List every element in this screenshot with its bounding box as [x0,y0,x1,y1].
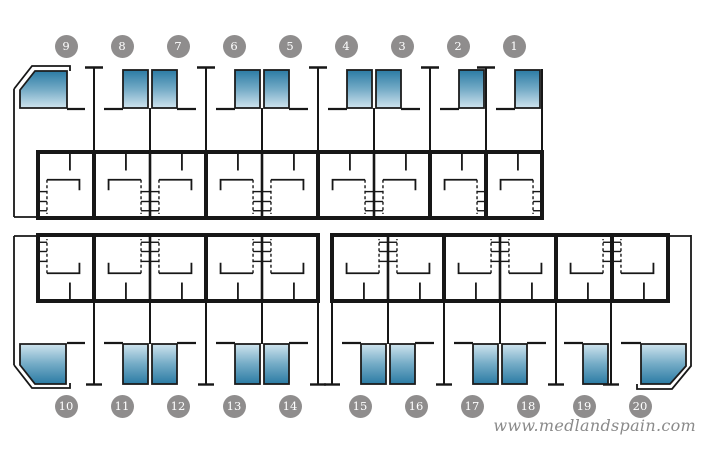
unit-badge-18: 18 [517,395,540,418]
pool-unit-20 [641,344,686,384]
unit-badge-19: 19 [573,395,596,418]
plan-room-wall [109,263,141,274]
unit-plan-6 [221,152,262,214]
unit-badge-7: 7 [167,35,190,58]
plan-room-wall [383,180,415,191]
unit-plan-9 [38,152,79,214]
unit-plan-16 [388,239,429,301]
pool-unit-7 [152,70,177,108]
pool-unit-3 [376,70,401,108]
unit-plan-20 [612,239,653,301]
unit-badge-8: 8 [111,35,134,58]
unit-badge-11: 11 [111,395,134,418]
unit-plan-18 [500,239,541,301]
pool-unit-8 [123,70,148,108]
block-top-row [14,66,542,218]
pool-unit-9 [20,71,67,108]
unit-badge-9: 9 [55,35,78,58]
pool-unit-19 [583,344,608,384]
unit-badge-17: 17 [461,395,484,418]
pool-unit-16 [390,344,415,384]
pool-unit-10 [20,344,66,384]
pool-unit-2 [459,70,484,108]
plan-room-wall [109,180,141,191]
unit-plan-14 [262,239,303,301]
unit-plan-17 [459,239,500,301]
pool-unit-15 [361,344,386,384]
plan-room-wall [271,263,303,274]
plan-room-wall [501,180,533,191]
unit-plan-19 [571,239,612,301]
plan-room-wall [47,180,79,191]
unit-plan-1 [501,152,542,214]
plan-room-wall [271,180,303,191]
unit-plan-7 [150,152,191,214]
pool-unit-13 [235,344,260,384]
unit-plan-2 [445,152,486,214]
plan-room-wall [221,263,253,274]
unit-plan-15 [347,239,388,301]
unit-badge-6: 6 [223,35,246,58]
floor-plan-diagram: 9876543211011121314151617181920 www.medl… [0,0,705,454]
unit-plan-11 [109,239,150,301]
unit-plan-13 [221,239,262,301]
pool-unit-12 [152,344,177,384]
plan-room-wall [159,263,191,274]
unit-badge-13: 13 [223,395,246,418]
site-plan-drawing [0,0,705,454]
plan-room-wall [47,263,79,274]
pool-unit-6 [235,70,260,108]
pool-unit-18 [502,344,527,384]
unit-plan-10 [38,239,79,301]
pool-unit-17 [473,344,498,384]
unit-badge-1: 1 [503,35,526,58]
unit-badge-4: 4 [335,35,358,58]
plan-room-wall [159,180,191,191]
plan-room-wall [221,180,253,191]
plan-room-wall [445,180,477,191]
unit-badge-12: 12 [167,395,190,418]
unit-badge-20: 20 [629,395,652,418]
unit-plan-5 [262,152,303,214]
unit-plan-8 [109,152,150,214]
unit-badge-10: 10 [55,395,78,418]
unit-badge-3: 3 [391,35,414,58]
plan-room-wall [333,180,365,191]
building-outer-wall [38,152,542,218]
unit-badge-2: 2 [447,35,470,58]
unit-plan-3 [374,152,415,214]
unit-plan-12 [150,239,191,301]
unit-badge-5: 5 [279,35,302,58]
pool-unit-5 [264,70,289,108]
block-bottom-left-row [14,235,326,388]
unit-plan-4 [333,152,374,214]
block-bottom-right-row [324,235,691,389]
pool-unit-4 [347,70,372,108]
pool-unit-1 [515,70,540,108]
pool-unit-14 [264,344,289,384]
plan-room-wall [621,263,653,274]
unit-badge-16: 16 [405,395,428,418]
plan-room-wall [571,263,603,274]
plan-room-wall [397,263,429,274]
plan-room-wall [509,263,541,274]
unit-badge-15: 15 [349,395,372,418]
unit-badge-14: 14 [279,395,302,418]
watermark-text: www.medlandspain.com [493,416,696,435]
plan-room-wall [347,263,379,274]
pool-unit-11 [123,344,148,384]
plan-room-wall [459,263,491,274]
